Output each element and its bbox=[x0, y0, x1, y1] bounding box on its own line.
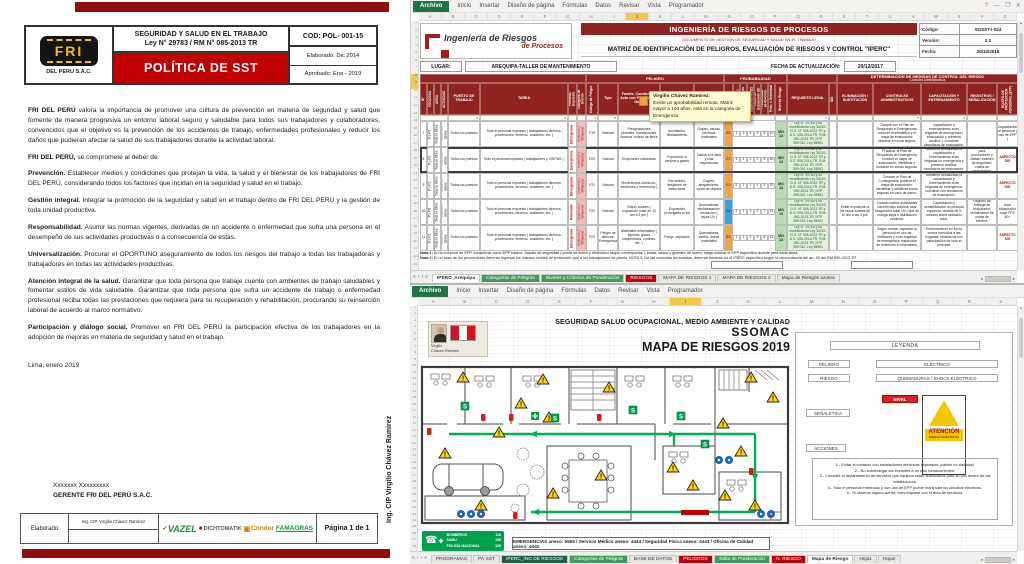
column-letter[interactable]: C bbox=[481, 298, 513, 305]
tab-nav-icon[interactable]: « bbox=[413, 274, 416, 280]
sheet-tab[interactable]: PELIGROS bbox=[678, 555, 713, 563]
policy-paragraph: Responsabilidad. Asumir las normas vigen… bbox=[28, 223, 380, 243]
top-red-bar bbox=[75, 2, 389, 12]
iperc-row[interactable]: 10 P1-P2 Toda la Obra Todos los dptos. T… bbox=[420, 199, 1018, 225]
column-letter[interactable]: Z bbox=[994, 13, 1017, 20]
partner-logo: VAZEL bbox=[162, 524, 197, 534]
empty-cell-box bbox=[711, 261, 783, 269]
row-number[interactable]: 15 bbox=[411, 127, 418, 135]
comment-text: Existe un aprobabilidad remota, Matriz m… bbox=[653, 100, 741, 117]
policy-paragraph: Universalización. Procurar el OPORTUNO a… bbox=[28, 250, 380, 270]
table-notes: Nota 1: En la columna de EPP, considerar… bbox=[420, 251, 1012, 261]
cell-consecuencia: Quemaduras, deshidratación, insolación (… bbox=[694, 199, 724, 225]
cell-severidad: E2 bbox=[724, 225, 733, 251]
footer-elaborated-label: Elaborado bbox=[21, 514, 69, 543]
emergency-phones-box: ☎✚ BOMBEROS116SAMU106POLICÍA NACIONAL105 bbox=[422, 531, 504, 551]
cell-indices: 2113714 bbox=[733, 199, 775, 225]
lugar-label: LUGAR: bbox=[420, 61, 462, 72]
cell-consecuencia: Quemaduras, asfixia, daños materiales bbox=[694, 225, 724, 251]
riesgo-label: RIESGO bbox=[808, 374, 850, 382]
row-number[interactable]: 10 bbox=[411, 89, 418, 97]
sheet-tab[interactable]: Mapa de Riesgo bbox=[807, 555, 854, 563]
column-letter[interactable]: O bbox=[741, 13, 764, 20]
column-letter[interactable]: J bbox=[702, 298, 734, 305]
update-date-label: FECHA DE ACTUALIZACIÓN: bbox=[771, 64, 840, 70]
column-letter[interactable]: H bbox=[639, 298, 671, 305]
cell-requisito-legal: Ley N° 29783 y su modificatoria Ley 3022… bbox=[787, 173, 829, 199]
column-letter[interactable]: A bbox=[419, 13, 442, 20]
lugar-value: AREQUIPA-TALLER DE MANTENIMIENTO bbox=[465, 61, 617, 72]
row-number[interactable]: 21 bbox=[411, 172, 418, 180]
row-number[interactable]: 8 bbox=[411, 74, 418, 82]
excel-mapa-window: Archivo InicioInsertarDiseño de páginaFó… bbox=[410, 283, 1024, 564]
row-number[interactable]: 11 bbox=[411, 96, 418, 104]
partner-logo: FAMAGRAS bbox=[276, 525, 313, 532]
policy-paragraph: Atención integral de la salud. Garantiza… bbox=[28, 277, 380, 317]
column-letter[interactable]: D bbox=[488, 13, 511, 20]
cell-epp: ASPECTO SIG bbox=[997, 225, 1018, 251]
column-letter[interactable]: U bbox=[879, 13, 902, 20]
column-letter[interactable]: Q bbox=[923, 298, 955, 305]
cell-riesgo: Inundación, deslizamiento bbox=[660, 121, 694, 147]
cell-capacitacion: Mantener actualizada la capacitación y e… bbox=[921, 147, 967, 173]
cell-riesgo: Fuego, explosión bbox=[660, 225, 694, 251]
sheet-tab[interactable]: Categorías de Peligros bbox=[569, 555, 628, 563]
scroll-up-icon: ▴ bbox=[1020, 305, 1022, 310]
row-numbers[interactable]: 1234567891011121314151617181920212223242… bbox=[411, 21, 419, 270]
document-footer-table: Elaborado Ing. CIP. Virgilio Chávez Ramí… bbox=[20, 513, 378, 544]
ribbon-tab[interactable]: Programador bbox=[669, 3, 704, 9]
doc-date: 20/10/2016 bbox=[960, 49, 1016, 54]
row-number[interactable]: 31 bbox=[411, 247, 418, 255]
policy-document: FRI DEL PERU S.A.C. SEGURIDAD Y SALUD EN… bbox=[0, 0, 410, 564]
cell-fuente: Erupciones volcánicas bbox=[618, 147, 660, 173]
row-number[interactable]: 25 bbox=[411, 202, 418, 210]
column-letter[interactable]: T bbox=[856, 13, 879, 20]
commented-cell-marker bbox=[639, 96, 648, 106]
ribbon-tab[interactable]: Insertar bbox=[478, 288, 498, 294]
cell-capacitacion: Entrenamiento en lucha contra incendios … bbox=[921, 225, 967, 251]
column-letter[interactable]: S bbox=[833, 13, 856, 20]
sheet-tab[interactable]: IPERC_Arequipa bbox=[432, 274, 480, 282]
cell-registros: Registro de entrega de bloqueador; señal… bbox=[967, 199, 997, 225]
peligro-label: PELIGRO bbox=[808, 360, 850, 368]
tab-nav-icon[interactable]: ‹ bbox=[417, 555, 419, 561]
close-icon[interactable]: ✕ bbox=[1016, 1, 1021, 9]
sheet-tab[interactable]: BASE DE DATOS bbox=[629, 555, 677, 563]
column-letter[interactable]: E bbox=[544, 298, 576, 305]
column-letter[interactable]: B bbox=[450, 298, 482, 305]
iperc-row[interactable]: 7 P1-P2 Toda la Obra Todos los dptos. To… bbox=[420, 121, 1018, 147]
plus-icon: ✚ bbox=[438, 538, 443, 545]
scroll-up-icon: ▴ bbox=[1020, 20, 1022, 25]
ribbon-tab[interactable]: Revisar bbox=[618, 288, 638, 294]
map-title-year: MAPA DE RIESGOS 2019 bbox=[550, 340, 790, 354]
column-letter[interactable]: C bbox=[465, 13, 488, 20]
row-number[interactable]: 17 bbox=[411, 142, 418, 150]
restore-icon[interactable]: ❐ bbox=[1005, 1, 1011, 9]
row-number[interactable]: 16 bbox=[411, 134, 418, 142]
v-scroll-thumb bbox=[1019, 318, 1023, 358]
sheet-tab[interactable]: Tabla de Ponderación bbox=[714, 555, 770, 563]
row-number[interactable]: 23 bbox=[411, 187, 418, 195]
column-letter[interactable]: X bbox=[948, 13, 971, 20]
cell-controles: Según norma: capacitar al personal en us… bbox=[873, 225, 921, 251]
cell-riesgo: Exposición prolongada al sol bbox=[660, 199, 694, 225]
sheet-tab[interactable]: PA-SST bbox=[473, 555, 500, 563]
tab-nav-icon[interactable]: « bbox=[412, 555, 415, 561]
ribbon-tab[interactable]: Fórmulas bbox=[561, 288, 586, 294]
cell-requisito-legal: Ley N° 29783 y su modificatoria Ley 3022… bbox=[787, 199, 829, 225]
map-titles: SEGURIDAD SALUD OCUPACIONAL, MEDIO AMBIE… bbox=[550, 318, 790, 354]
company-name: DEL PERU S.A.C. bbox=[46, 69, 91, 75]
ribbon-tab[interactable]: Vista bbox=[646, 288, 659, 294]
scroll-right-icon[interactable]: ▸ bbox=[1013, 276, 1015, 282]
cell-nivel-riesgo: MO 13 bbox=[775, 225, 787, 251]
ribbon-tab[interactable]: Inicio bbox=[456, 288, 470, 294]
map-title-ssomac: SSOMAC bbox=[550, 326, 790, 340]
sheet-tab[interactable]: Hoja2 bbox=[878, 555, 901, 563]
column-letter[interactable]: M bbox=[695, 13, 718, 20]
profile-card: Virgilio Chávez Ramirez bbox=[428, 321, 488, 357]
lightning-triangle-icon bbox=[929, 400, 959, 426]
row-number[interactable]: 4 bbox=[411, 44, 418, 52]
row-number[interactable]: 32 bbox=[411, 255, 418, 263]
row-number[interactable]: 24 bbox=[411, 195, 418, 203]
fri-logo-icon: FRI bbox=[40, 36, 98, 66]
ribbon-tab[interactable]: Vista bbox=[647, 3, 660, 9]
avatar bbox=[431, 324, 447, 343]
cell-codigo: F23 bbox=[586, 225, 598, 251]
row-number[interactable]: 12 bbox=[411, 104, 418, 112]
column-letter[interactable]: G bbox=[557, 13, 580, 20]
row-number[interactable]: 26 bbox=[411, 210, 418, 218]
cell-tarea: Todo el personal expuesto ( trabajadores… bbox=[480, 147, 568, 173]
cell-consecuencia: Daños a la vista y vías respiratorias bbox=[694, 147, 724, 173]
column-letter[interactable]: M bbox=[796, 298, 828, 305]
policy-paragraph: FRI DEL PERÚ, se compromete al deber de: bbox=[28, 153, 380, 163]
document-header-table: FRI DEL PERU S.A.C. SEGURIDAD Y SALUD EN… bbox=[24, 25, 378, 85]
row-number[interactable]: 6 bbox=[411, 59, 418, 67]
excel-iperc-window: Archivo InicioInsertarDiseño de páginaFó… bbox=[410, 0, 1024, 283]
column-letter[interactable]: F bbox=[534, 13, 557, 20]
sheet-tab[interactable]: Categorías de Peligros bbox=[481, 274, 540, 282]
cell-requisito-legal: Ley N° 29783 y su modificatoria Ley 3022… bbox=[787, 147, 829, 173]
doc-version: 2.1 bbox=[960, 38, 1016, 43]
cell-puesto: Todos los puestos bbox=[448, 121, 480, 147]
policy-body: FRI DEL PERÚ valora la importancia de pr… bbox=[28, 106, 380, 378]
row-number[interactable]: 20 bbox=[411, 164, 418, 172]
cell-nivel-riesgo: MO 13 bbox=[775, 199, 787, 225]
row-number[interactable]: 27 bbox=[411, 217, 418, 225]
column-letter[interactable]: Q bbox=[787, 13, 810, 20]
row-number[interactable]: 9 bbox=[411, 81, 418, 89]
signature-block: Xxxxxxx Xxxxxxxxx GERENTE FRI DEL PERÚ S… bbox=[53, 481, 152, 501]
cell-epp: ASPECTO SIG bbox=[997, 147, 1018, 173]
row-number[interactable]: 29 bbox=[411, 232, 418, 240]
signer-name: Xxxxxxx Xxxxxxxxx bbox=[53, 481, 152, 491]
row-number[interactable]: 7 bbox=[411, 66, 418, 74]
cell-tipo: Natural bbox=[598, 199, 618, 225]
cell-indices: 1112510 bbox=[733, 147, 775, 173]
cell-requisito-legal: Ley N° 29783 y su modificatoria Ley 3022… bbox=[787, 121, 829, 147]
cell-epp: Capacitación al personal ( uso de EPP ) bbox=[997, 121, 1018, 147]
tab-nav-icon[interactable]: › bbox=[420, 555, 422, 561]
cell-codigo: F21 bbox=[586, 173, 598, 199]
cell-puesto: Todos los puestos bbox=[448, 225, 480, 251]
column-letter[interactable]: I bbox=[603, 13, 626, 20]
column-letter[interactable]: J bbox=[626, 13, 649, 20]
row-number[interactable]: 13 bbox=[411, 112, 418, 120]
cell-riesgo: Exposición a cenizas y gases bbox=[660, 147, 694, 173]
ribbon-tab[interactable]: Revisar bbox=[619, 3, 639, 9]
policy-paragraph: Prevención. Establecer medios y condicio… bbox=[28, 169, 380, 189]
row-number[interactable]: 30 bbox=[411, 240, 418, 248]
ribbon-tab[interactable]: Diseño de página bbox=[507, 288, 554, 294]
column-letter[interactable]: F bbox=[576, 298, 608, 305]
cell-nivel-riesgo: MO 13 bbox=[775, 121, 787, 147]
peru-flag-icon bbox=[450, 325, 476, 341]
tab-nav-icon[interactable]: » bbox=[425, 274, 428, 280]
brand-box: Ingeniería de Riesgos de Procesos bbox=[420, 23, 572, 59]
column-letter[interactable]: W bbox=[925, 13, 948, 20]
cell-controles: Conocer el Plan de Contingencia; publica… bbox=[873, 173, 921, 199]
column-headers[interactable]: ABCDEFGHIJKLMNOPQRSTUVWXYZ bbox=[419, 13, 1017, 21]
cell-puesto: Todos los puestos bbox=[448, 147, 480, 173]
cell-nivel-riesgo: MO 13 bbox=[775, 147, 787, 173]
cell-controles: Cumplir con el Plan de Respuesta a Emerg… bbox=[873, 121, 921, 147]
footer-author: Ing. CIP. Virgilio Chávez Ramírez bbox=[69, 514, 158, 530]
sign-subtitle: RIESGO ELÉCTRICO bbox=[925, 436, 963, 441]
subtitle: DOCUMENTO DE GESTIÓN DE SEGURIDAD Y SALU… bbox=[581, 35, 917, 43]
cell-requisito-legal: Ley N° 29783 y su modificatoria Ley 3022… bbox=[787, 225, 829, 251]
sheet-tab[interactable]: MAPA DE RIESGOS 1 bbox=[658, 274, 716, 282]
column-letter[interactable]: K bbox=[733, 298, 765, 305]
header-law-title: SEGURIDAD Y SALUD EN EL TRABAJO Ley N° 2… bbox=[114, 27, 288, 53]
ribbon-tab[interactable]: Programador bbox=[668, 288, 703, 294]
sheet-tab[interactable]: PROGRAMAS bbox=[431, 555, 472, 563]
tab-nav-icon[interactable]: › bbox=[421, 274, 423, 280]
partner-logos: VAZELDICHTOMATIKCondorFAMAGRAS bbox=[159, 514, 317, 543]
cell-puesto: Todos los puestos bbox=[448, 199, 480, 225]
partner-logo: Condor bbox=[243, 525, 274, 533]
row-number[interactable]: 5 bbox=[411, 51, 418, 59]
cell-puesto: Todos los puestos bbox=[448, 173, 480, 199]
matrix-title: MATRIZ DE IDENTIFICACIÓN DE PELIGROS, EV… bbox=[581, 43, 917, 57]
iperc-row[interactable]: 11 P1-P2 Toda la Obra Todos los dptos. T… bbox=[420, 225, 1018, 251]
column-letter[interactable]: I bbox=[670, 298, 702, 305]
emergency-extensions-line: EMERGENCIAS anexo: 5555 / Servicio Médic… bbox=[512, 537, 770, 550]
floor-plan: ! S bbox=[419, 364, 791, 530]
cell-consecuencia: Golpes, atrapamiento, caída de objetos bbox=[694, 173, 724, 199]
policy-paragraph: FRI DEL PERÚ valora la importancia de pr… bbox=[28, 106, 380, 146]
iperc-row[interactable]: 9 P1-P2 Toda la Obra Todos los dptos. To… bbox=[420, 173, 1018, 199]
partner-logo: DICHTOMATIK bbox=[198, 525, 241, 532]
sheet-tab[interactable]: MAPA DE RIESGOS 2 bbox=[717, 274, 775, 282]
cell-tarea: Todo el personal expuesto ( trabajadores… bbox=[480, 173, 568, 199]
row-numbers[interactable]: 1234567891011121314151617181920212223242… bbox=[410, 306, 418, 551]
doc-code: SGSST-I-024 bbox=[960, 27, 1016, 32]
column-letter[interactable]: S bbox=[986, 298, 1018, 305]
column-letter[interactable]: L bbox=[765, 298, 797, 305]
ribbon-tab[interactable]: Insertar bbox=[479, 3, 499, 9]
row-number[interactable]: 33 bbox=[411, 263, 418, 271]
row-number[interactable]: 22 bbox=[411, 179, 418, 187]
policy-title: POLÍTICA DE SST bbox=[114, 53, 288, 83]
cell-severidad: S1 bbox=[724, 199, 733, 225]
ribbon-tab[interactable]: Datos bbox=[595, 3, 611, 9]
column-letter[interactable]: G bbox=[607, 298, 639, 305]
row-number[interactable]: 19 bbox=[411, 157, 418, 165]
h-scroll-thumb[interactable] bbox=[985, 276, 1011, 282]
cell-registros: Registro / charla para proveedores y vis… bbox=[967, 147, 997, 173]
column-headers[interactable]: ABCDEFGHIJKLMNOPQRS bbox=[418, 298, 1017, 306]
ingenieria-riesgos-logo-icon bbox=[425, 34, 440, 49]
vertical-scrollbar[interactable]: ▴ bbox=[1017, 21, 1024, 270]
ribbon-tab[interactable]: Fórmulas bbox=[562, 3, 587, 9]
cell-codigo: F20 bbox=[586, 147, 598, 173]
ribbon-tab[interactable]: Inicio bbox=[457, 3, 471, 9]
ribbon-tab[interactable]: Diseño de página bbox=[508, 3, 555, 9]
comment-popup: Virgilio Chávez Ramirez: Existe un aprob… bbox=[649, 91, 751, 122]
column-letter[interactable]: O bbox=[859, 298, 891, 305]
tab-nav-icon[interactable]: ‹ bbox=[418, 274, 420, 280]
cell-tipo: Natural bbox=[598, 173, 618, 199]
iperc-body: 7 P1-P2 Toda la Obra Todos los dptos. To… bbox=[420, 121, 1018, 251]
main-title: INGENIERÍA DE RIESGOS DE PROCESOS bbox=[581, 23, 917, 35]
column-letter[interactable]: V bbox=[902, 13, 925, 20]
legend-header: LEYENDA bbox=[830, 341, 980, 350]
column-letter[interactable]: E bbox=[511, 13, 534, 20]
file-tab[interactable]: Archivo bbox=[412, 286, 448, 297]
sheet-tab[interactable]: N. RIESGO bbox=[771, 555, 806, 563]
page-number: Página 1 de 1 bbox=[317, 514, 377, 543]
cell-riesgo: Derrumbes, desplome de estructuras bbox=[660, 173, 694, 199]
nivel-badge: NIVEL bbox=[882, 395, 918, 403]
cell-tipo: Natural bbox=[598, 147, 618, 173]
row-number[interactable]: 1 bbox=[411, 21, 418, 29]
senaletica-label: SEÑALETICA bbox=[806, 409, 850, 417]
phone-icon: ☎ bbox=[425, 536, 437, 546]
h-scroll-thumb[interactable] bbox=[985, 557, 1011, 563]
scroll-left-icon[interactable]: ◂ bbox=[980, 276, 982, 282]
help-icon[interactable]: ? bbox=[984, 2, 988, 9]
file-tab[interactable]: Archivo bbox=[413, 1, 449, 12]
column-letter[interactable]: P bbox=[764, 13, 787, 20]
cell-registros bbox=[967, 225, 997, 251]
column-letter[interactable]: A bbox=[418, 298, 450, 305]
cell-tipo: Natural bbox=[598, 121, 618, 147]
column-letter[interactable]: D bbox=[513, 298, 545, 305]
column-letter[interactable]: N bbox=[718, 13, 741, 20]
vertical-author-note: Ing. CIP Virgilio Chávez Ramirez bbox=[386, 293, 393, 523]
column-letter[interactable]: R bbox=[810, 13, 833, 20]
row-number[interactable]: 18 bbox=[411, 149, 418, 157]
cell-epp: Usar bloqueador solar FPS 50+ bbox=[997, 199, 1018, 225]
sheet-tab[interactable]: Mapa de Riesgos azotea bbox=[777, 274, 840, 282]
title-band: INGENIERÍA DE RIESGOS DE PROCESOS DOCUME… bbox=[581, 23, 917, 57]
cell-fuente: Precipitaciones pluviales, inundaciones,… bbox=[618, 121, 660, 147]
group-header-row: PELIGRO PROBABILIDAD DETERMINACIÓN DE ME… bbox=[420, 74, 1018, 83]
column-letter[interactable]: K bbox=[649, 13, 672, 20]
row-number[interactable]: 2 bbox=[411, 29, 418, 37]
cell-tarea: Todo el personal expuesto ( trabajadores… bbox=[480, 121, 568, 147]
cell-eliminacion bbox=[837, 147, 873, 173]
column-letter[interactable]: R bbox=[954, 298, 986, 305]
ribbon-tab[interactable]: Datos bbox=[594, 288, 610, 294]
legend-panel: LEYENDA PELIGRO ELÉCTRICO RIESGO QUEMADU… bbox=[795, 332, 1013, 526]
row-number[interactable]: 28 bbox=[411, 225, 418, 233]
sheet-tabs-bar: «‹›» PROGRAMASPA-SSTIPERC_ING DE RIESGOS… bbox=[410, 551, 1017, 564]
cell-capacitacion: Mantener actualizada la capacitación y e… bbox=[921, 121, 967, 147]
empty-cell-box bbox=[851, 261, 913, 269]
cell-indices: 1122612 bbox=[733, 225, 775, 251]
company-logo: FRI DEL PERU S.A.C. bbox=[26, 27, 114, 83]
policy-paragraph: Participación y diálogo social. Promover… bbox=[28, 323, 380, 343]
vertical-scrollbar[interactable]: ▴ bbox=[1017, 306, 1024, 551]
column-letter[interactable]: P bbox=[891, 298, 923, 305]
sheet-tab[interactable]: Hoja1 bbox=[854, 555, 877, 563]
column-letter[interactable]: N bbox=[828, 298, 860, 305]
cell-eliminacion bbox=[837, 225, 873, 251]
tab-nav-icon[interactable]: » bbox=[424, 555, 427, 561]
cell-tarea: Todo el personal expuesto ( trabajadores… bbox=[480, 225, 568, 251]
signer-role: GERENTE FRI DEL PERÚ S.A.C. bbox=[53, 491, 152, 501]
ribbon: Archivo InicioInsertarDiseño de páginaFó… bbox=[411, 0, 1024, 13]
cell-eliminacion bbox=[837, 173, 873, 199]
riesgo-value: QUEMADURAS / SHOCK ELECTRICO bbox=[876, 374, 998, 382]
v-scroll-thumb bbox=[1019, 33, 1023, 73]
sheet-tab[interactable]: Niveles y Criterios de Ponderación bbox=[541, 274, 625, 282]
cell-eliminacion bbox=[837, 121, 873, 147]
cell-fuente: Materiales inflamables ( líquidos, gases… bbox=[618, 225, 660, 251]
policy-paragraph: Gestión integral. Integrar la promoción … bbox=[28, 196, 380, 216]
sheet-tab[interactable]: RIESGOS bbox=[625, 274, 657, 282]
cell-capacitacion: Capacitación y sensibilización al person… bbox=[921, 199, 967, 225]
phone-row: POLICÍA NACIONAL105 bbox=[447, 544, 502, 549]
cell-epp: ASPECTO SIG bbox=[997, 173, 1018, 199]
acciones-list: 1.- Evitar el contacto con instalaciones… bbox=[812, 458, 998, 520]
row-number[interactable]: 3 bbox=[411, 36, 418, 44]
elaborated-date: Elaborado: Dic 2014 bbox=[290, 47, 376, 66]
document-date: Lima, enero 2019 bbox=[28, 361, 380, 371]
bottom-red-bar bbox=[22, 549, 390, 558]
cell-severidad: E2 bbox=[724, 121, 733, 147]
scroll-right-icon[interactable]: ▸ bbox=[1013, 557, 1015, 563]
accion-item: 3.- Consulte al departamento de servicio… bbox=[817, 473, 993, 484]
cell-fuente: Movimientos sísmicos ( temblores y terre… bbox=[618, 173, 660, 199]
column-letter[interactable]: L bbox=[672, 13, 695, 20]
cell-severidad: E2 bbox=[724, 173, 733, 199]
cell-codigo: F19 bbox=[586, 121, 598, 147]
accion-item: 5.- Si observa alguna averia, comuniques… bbox=[817, 490, 993, 496]
cell-capacitacion: Mantener actualizada la capacitación y e… bbox=[921, 173, 967, 199]
iperc-row[interactable]: 8 P1-P2 Toda la Obra Todos los dptos. To… bbox=[420, 147, 1018, 173]
column-letter[interactable]: Y bbox=[971, 13, 994, 20]
approved-date: Aprobado: Ene - 2019 bbox=[290, 66, 376, 84]
column-letter[interactable]: B bbox=[442, 13, 465, 20]
minimize-icon[interactable]: — bbox=[993, 2, 1000, 9]
cell-controles: Practicar el Plan de Respuesta de Emerge… bbox=[873, 147, 921, 173]
cell-consecuencia: Golpes, caídas, pérdidas materiales bbox=[694, 121, 724, 147]
row-number[interactable]: 14 bbox=[411, 119, 418, 127]
column-letter[interactable]: H bbox=[580, 13, 603, 20]
cell-fuente: Rayos solares ( exposición solar de 10 a… bbox=[618, 199, 660, 225]
document-code: COD: POL- 001-15 bbox=[290, 27, 376, 47]
scroll-left-icon[interactable]: ◂ bbox=[980, 557, 982, 563]
sheet-tab[interactable]: IPERC_ING DE RIESGOS bbox=[501, 555, 568, 563]
cell-eliminacion: Evitar exposición a los rayos solares de… bbox=[837, 199, 873, 225]
